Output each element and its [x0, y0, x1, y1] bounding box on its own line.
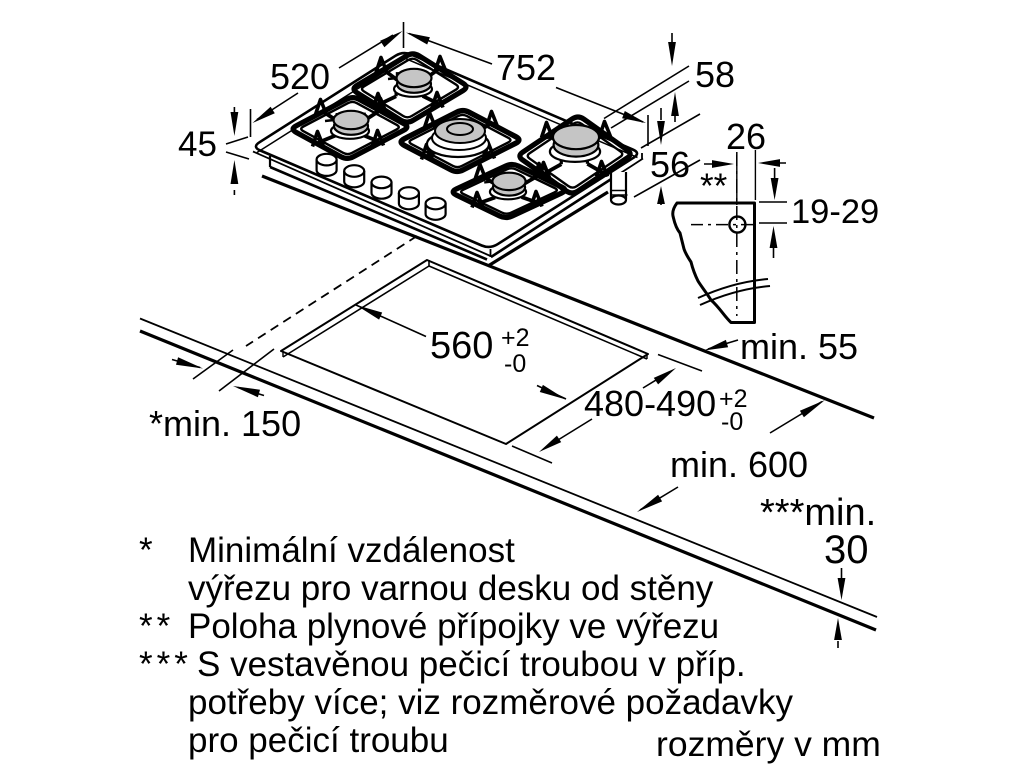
svg-text:560: 560	[430, 325, 493, 367]
svg-text:56: 56	[650, 144, 690, 185]
svg-text:-0: -0	[504, 350, 526, 378]
svg-text:výřezu pro varnou desku od stě: výřezu pro varnou desku od stěny	[188, 569, 714, 608]
svg-text:min. 55: min. 55	[740, 326, 858, 367]
svg-text:rozměry v mm: rozměry v mm	[656, 724, 881, 764]
svg-text:S vestavěnou pečicí troubou v: S vestavěnou pečicí troubou v příp.	[197, 645, 746, 684]
svg-text:30: 30	[824, 528, 869, 572]
svg-text:pro pečicí troubu: pro pečicí troubu	[188, 721, 449, 760]
svg-text:**: **	[700, 167, 728, 206]
svg-text:58: 58	[695, 54, 735, 95]
svg-text:**: **	[139, 607, 174, 646]
svg-text:752: 752	[496, 47, 556, 88]
svg-text:-0: -0	[721, 408, 743, 436]
svg-text:min. 600: min. 600	[670, 444, 808, 485]
svg-text:19-29: 19-29	[791, 193, 879, 231]
svg-text:480-490: 480-490	[584, 383, 716, 424]
svg-text:potřeby více; viz rozměrové po: potřeby více; viz rozměrové požadavky	[188, 683, 793, 722]
svg-text:Minimální vzdálenost: Minimální vzdálenost	[188, 531, 515, 570]
svg-text:*: *	[139, 531, 153, 570]
svg-text:***: ***	[139, 645, 192, 684]
svg-text:45: 45	[178, 125, 217, 164]
svg-text:Poloha plynové přípojky ve výř: Poloha plynové přípojky ve výřezu	[188, 607, 719, 646]
svg-text:520: 520	[270, 56, 330, 97]
svg-text:*min. 150: *min. 150	[149, 403, 301, 444]
svg-text:26: 26	[726, 116, 766, 157]
svg-text:+2: +2	[501, 324, 530, 352]
